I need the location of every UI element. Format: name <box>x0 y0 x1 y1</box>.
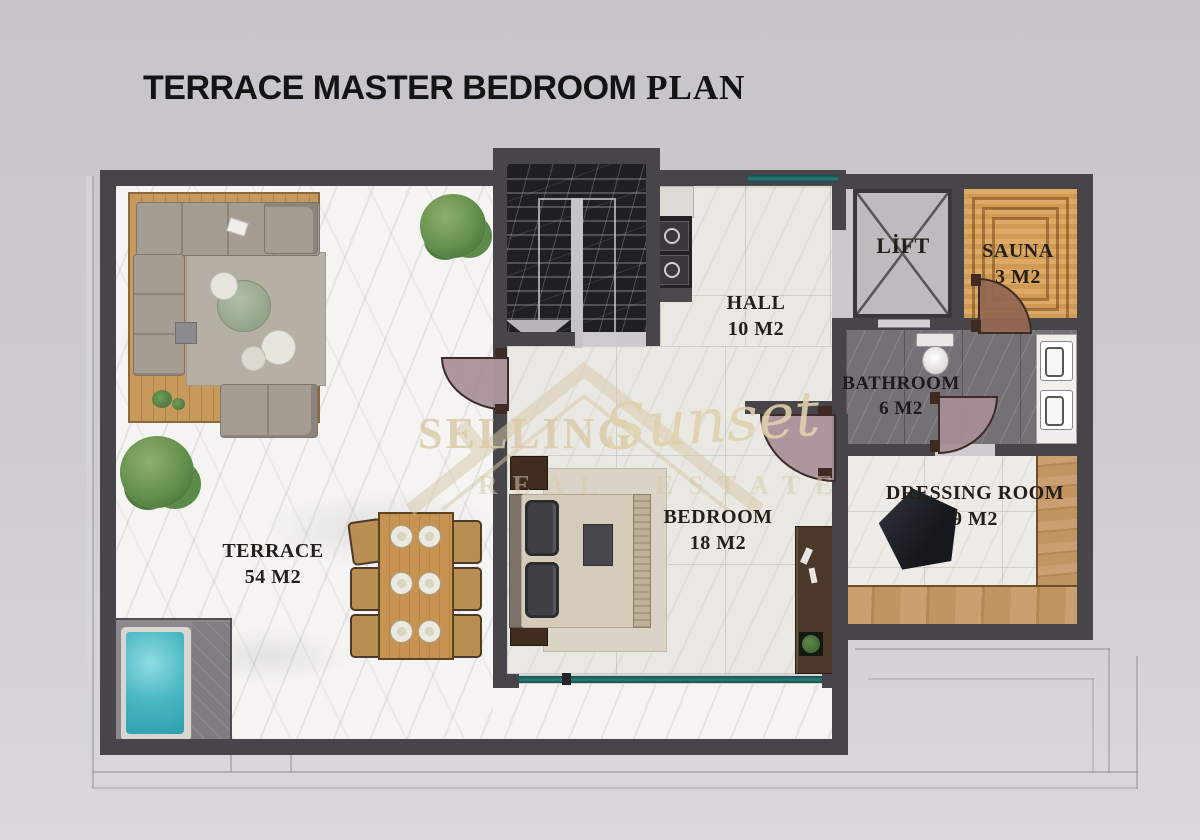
plate <box>418 620 441 643</box>
room-area: 18 M2 <box>648 530 788 556</box>
wall-segment <box>493 674 519 688</box>
sink <box>1040 341 1073 381</box>
outline-line <box>92 176 94 788</box>
oven-dial-icon <box>664 228 680 244</box>
wall-segment <box>100 170 116 755</box>
wall-segment <box>100 739 846 755</box>
title-suffix: PLAN <box>636 68 745 107</box>
coffee-table-white-1 <box>210 272 238 300</box>
wall-segment <box>832 624 1093 640</box>
wall-segment <box>646 148 660 346</box>
room-label-bathroom: BATHROOM 6 M2 <box>826 372 976 421</box>
room-area: 10 M2 <box>696 316 816 342</box>
outline-line <box>92 771 1138 773</box>
wall-segment <box>493 332 575 346</box>
oven-dial-icon <box>664 262 680 278</box>
plate <box>418 572 441 595</box>
wall-segment <box>493 404 507 688</box>
room-name: LİFT <box>853 232 953 261</box>
door-hinge <box>495 404 507 414</box>
door-hinge <box>971 320 981 332</box>
outline-line <box>92 787 1138 789</box>
room-name: HALL <box>696 290 816 316</box>
deck-plant <box>152 390 172 408</box>
sofa-left <box>133 254 185 376</box>
wall-segment <box>1077 174 1093 640</box>
outline-tick <box>230 755 232 772</box>
side-table-dark <box>175 322 197 344</box>
wall-segment <box>846 444 935 456</box>
sink <box>1040 390 1073 430</box>
room-area: 9 M2 <box>865 506 1085 532</box>
coffee-table-white-3 <box>241 346 266 371</box>
nightstand <box>510 456 548 490</box>
door-hinge <box>930 440 940 452</box>
sink-basin <box>1045 396 1064 426</box>
room-name: SAUNA <box>960 238 1076 264</box>
jacuzzi-water <box>126 632 184 734</box>
window <box>748 175 838 182</box>
room-label-sauna: SAUNA 3 M2 <box>960 238 1076 290</box>
wardrobe-bottom <box>846 585 1077 626</box>
deck-plant-2 <box>172 398 185 410</box>
stair-center-rail <box>571 198 583 348</box>
room-name: TERRACE <box>203 538 343 564</box>
outline-tick <box>290 755 292 772</box>
room-name: BATHROOM <box>826 372 976 397</box>
wall-segment <box>493 148 660 164</box>
door-hinge <box>495 348 507 358</box>
room-label-bedroom: BEDROOM 18 M2 <box>648 504 788 556</box>
plate <box>390 572 413 595</box>
room-name: BEDROOM <box>648 504 788 530</box>
door-hinge <box>818 468 832 478</box>
outline-line <box>1136 656 1138 789</box>
terrace-floor-south <box>493 684 832 739</box>
title-main: TERRACE MASTER BEDROOM <box>143 69 636 107</box>
wall-segment <box>100 170 500 186</box>
sink-basin <box>1045 347 1064 377</box>
room-area: 6 M2 <box>826 397 976 422</box>
room-label-lift: LİFT <box>853 232 953 261</box>
floor-plan-page: TERRACE MASTER BEDROOM PLAN <box>0 0 1200 840</box>
tree-icon <box>420 194 486 258</box>
room-area: 54 M2 <box>203 564 343 590</box>
outline-line <box>868 678 1094 680</box>
bed-throw <box>583 524 613 566</box>
sofa-bottom <box>220 384 318 438</box>
outline-line <box>1108 648 1110 773</box>
bed-pillow <box>525 500 559 556</box>
console-plant-leaves <box>802 635 820 653</box>
room-label-dressing: DRESSING ROOM 9 M2 <box>865 480 1085 532</box>
wall-segment <box>822 674 846 688</box>
room-area: 3 M2 <box>960 264 1076 290</box>
wall-segment <box>846 174 1093 189</box>
outline-line <box>1092 678 1094 773</box>
bed-pillow <box>525 562 559 618</box>
toilet-tank <box>916 333 954 347</box>
room-name: DRESSING ROOM <box>865 480 1085 506</box>
plate <box>390 525 413 548</box>
outline-line <box>855 648 1110 650</box>
room-label-hall: HALL 10 M2 <box>696 290 816 342</box>
wall-segment <box>493 148 507 360</box>
toilet-bowl <box>922 346 949 375</box>
tree-icon <box>120 436 194 508</box>
room-label-terrace: TERRACE 54 M2 <box>203 538 343 590</box>
plate <box>418 525 441 548</box>
coffee-table-white-2 <box>261 330 296 365</box>
plate <box>390 620 413 643</box>
lift-door-line <box>878 319 930 328</box>
jacuzzi-deck-strip <box>192 622 230 744</box>
window-mullion <box>562 673 571 685</box>
page-title: TERRACE MASTER BEDROOM PLAN <box>143 68 745 108</box>
sofa-armchair <box>264 202 318 254</box>
wall-segment <box>995 444 1077 456</box>
